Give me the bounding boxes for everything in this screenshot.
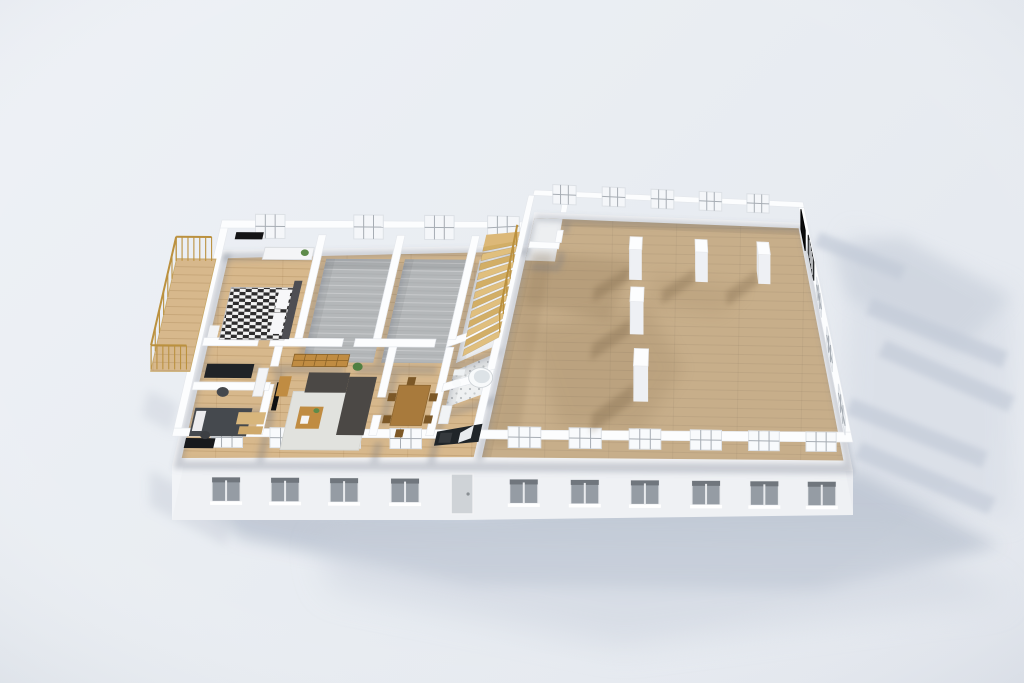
- floorplan-scene: [0, 0, 1024, 683]
- vignette-overlay: [0, 0, 1024, 683]
- floor-plan-render: [0, 0, 1024, 683]
